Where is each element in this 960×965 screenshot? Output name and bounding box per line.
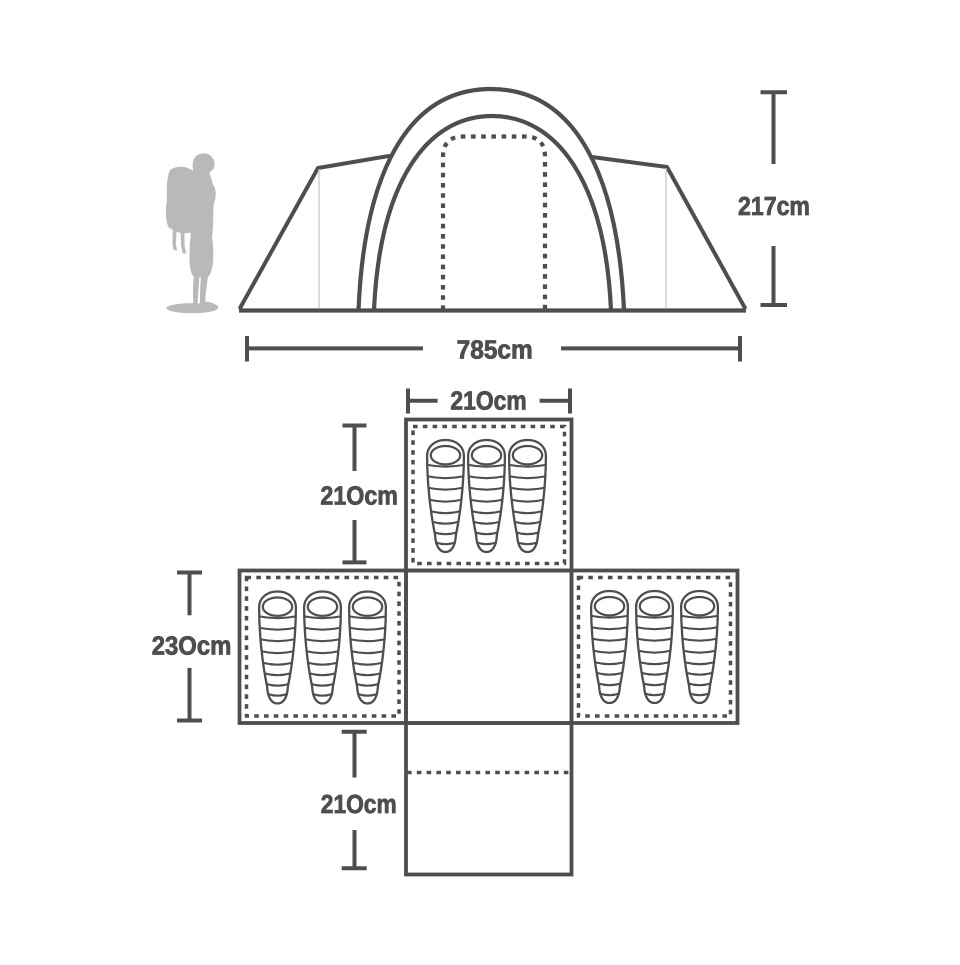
- svg-text:21Ocm: 21Ocm: [450, 388, 526, 416]
- svg-text:785cm: 785cm: [457, 336, 533, 364]
- svg-text:217cm: 217cm: [738, 193, 810, 221]
- svg-text:23Ocm: 23Ocm: [152, 633, 232, 661]
- svg-text:21Ocm: 21Ocm: [321, 791, 397, 819]
- svg-text:21Ocm: 21Ocm: [320, 482, 398, 510]
